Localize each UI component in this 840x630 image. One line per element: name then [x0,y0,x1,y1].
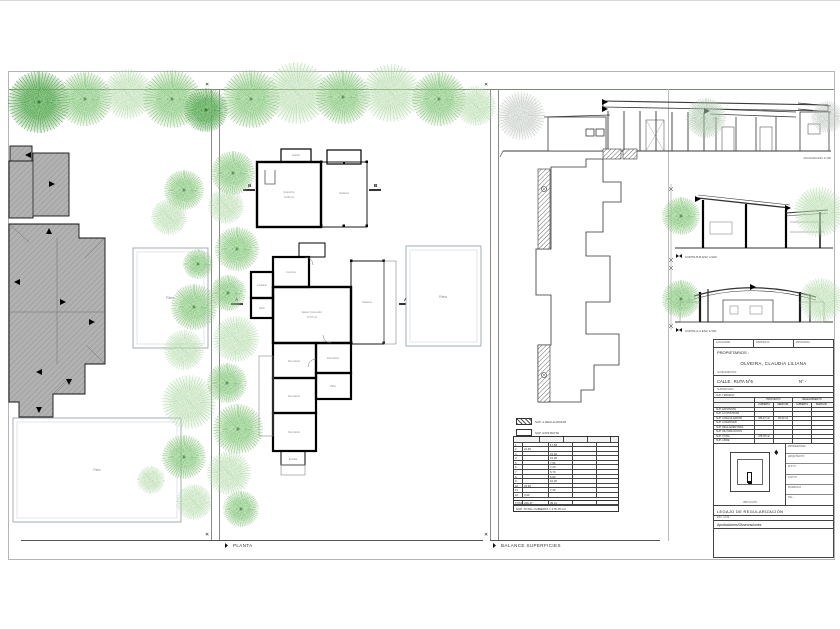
entrance-mark [748,481,752,484]
surfaces-cell [793,412,812,416]
title-block-top-cell: PARTIDA N° [754,340,794,347]
group-header-spacer [714,398,755,402]
table-cell [523,452,549,456]
room-label: Cocina [286,270,296,274]
table-cell [573,452,597,456]
room-label: Lavadero [257,284,268,287]
table-cell [549,447,573,451]
table-header-cell [588,437,609,442]
surfaces-cell [774,430,793,434]
table-cell [597,501,618,505]
room-label: Baño [330,385,336,388]
table-cell: 10,30 [549,479,573,483]
surfaces-cell [793,439,812,443]
surfaces-cell [812,435,831,439]
table-cell [573,470,597,474]
surfaces-cell [812,417,831,421]
surface-legend: SUP. A REGULARIZAR SUP. EXISTENTE [516,416,566,438]
table-cell: 4,90 [523,493,549,497]
table-cell: 5 [514,461,523,465]
professional-row: ARQUITECTO [786,454,833,464]
surfaces-row-label: SUP. LIBRE [714,439,755,443]
table-cell [549,484,573,488]
surfaces-cell [793,435,812,439]
corte-b-section: CORTE B-B ESC 1/100 [675,195,833,259]
corte-a-caption: CORTE A-A ESC 1/100 [685,329,717,333]
professional-row: TEL. : [786,495,833,504]
architectural-sheet: Pileta Patio [8,71,835,560]
table-cell: 15,90 [549,456,573,460]
table-cell [549,493,573,497]
room-label: Dormitorio [288,394,301,398]
surfaces-cell [755,412,774,416]
professional-row: PROFESIONAL : [786,444,833,454]
table-header-cell [540,437,564,442]
table-cell: 11 [514,488,523,492]
surfaces-cell [755,430,774,434]
table-cell [573,484,597,488]
table-cell [573,479,597,483]
regularization-plan [536,149,637,402]
street-number: N° - [799,379,833,384]
surfaces-cell [812,426,831,430]
room-label: Dormitorio [327,356,340,360]
table-cell [597,493,618,497]
room-area-label: 37,07 m2 [307,316,318,319]
pool-label: Pileta [439,295,447,299]
title-block-top-strip: LOCALIDADPARTIDA N°PROVINCIA [714,340,833,348]
table-cell: 8 [514,475,523,479]
planta-caption: PLANTA [225,543,253,548]
table-cell [597,470,618,474]
table-cell [597,484,618,488]
boundary-marker-icon: ✕ [205,83,209,88]
legend-item: SUP. A REGULARIZAR [516,416,566,427]
owner-name: OLVEIRA, CLAUDIA LILIANA [714,357,833,370]
boundary-marker-icon: ✕ [205,533,209,538]
table-cell: 4 [514,456,523,460]
table-cell [597,452,618,456]
boundary-marker-icon: ✕ [484,533,488,538]
section-dimension-line [669,184,673,330]
table-cell: 5,70 [549,470,573,474]
table-cell [523,488,549,492]
corte-a-section: CORTE A-A ESC 1/100 [675,284,833,333]
table-cell: 7,40 [549,488,573,492]
location-caption: UBICACIÓN [714,501,786,504]
title-block: LOCALIDADPARTIDA N°PROVINCIA PROPIETARIO… [713,339,834,558]
table-cell [523,456,549,460]
table-cell: 17,50 [549,443,573,447]
location-sketch: ♦ UBICACIÓN [714,444,786,505]
table-cell [573,443,597,447]
boundary-marker-icon: ✕ [484,83,488,88]
roof-plan-building [9,146,105,417]
room-label: Asador [292,153,300,157]
surfaces-row-label: SUP. TOTAL [714,435,755,439]
table-cell [597,488,618,492]
table-cell [523,470,549,474]
planta-caption-text: PLANTA [233,543,253,548]
surfaces-cell [774,408,793,412]
surfaces-row-label: SUP. DE INFRACCIÓN [714,430,755,434]
professional-row: M.P. N° [786,464,833,474]
room-label: Dormitorio [288,359,301,363]
table-cell: 10 [514,484,523,488]
empty-swatch-icon [516,429,532,436]
surfaces-table-body: SUP. EXISTENTE SUP. A CONSTRUIR [714,408,833,444]
table-cell: 6,80 [549,475,573,479]
table-cell [523,465,549,469]
table-cell [523,461,549,465]
table-row: 12 4,90 [514,493,618,498]
room-label: Galería [339,191,349,195]
main-house [251,243,396,475]
approvals-label: Aprobaciones/Observaciones [714,521,833,529]
table-cell: 24,60 [523,447,549,451]
surfaces-cell: 236,47 m2 [755,417,774,421]
table-body: 1 17,50 2 24,60 [514,443,618,498]
surfaces-cell [755,439,774,443]
surfaces-cell [774,439,793,443]
table-cell [573,456,597,460]
floor-plan-panel: Asador Quincho 24,60 m2 Galería Cocina L… [219,72,499,559]
table-cell [573,461,597,465]
professional-row: DOMICILIO : [786,485,833,495]
wall-ticks [320,161,385,345]
address-row: CALLE : RUTA N°6 N° - [714,376,833,387]
table-cell: TOTAL [514,501,523,505]
table-cell [573,475,597,479]
surfaces-cell [793,408,812,412]
surfaces-row-label: SUP. A DEMOLER [714,421,755,425]
table-cell [573,488,597,492]
room-labels: Asador Quincho 24,60 m2 Galería Cocina L… [257,153,372,461]
col-header-cell: SEMICUB. [774,403,793,407]
surfaces-row-label: SUP. REGLAMENTARIA [714,426,755,430]
group-header-cell: PROYECTO [755,398,793,402]
table-cell [597,479,618,483]
balance-caption: BALANCE SUPERFICIES [493,543,561,548]
plan-pool: Pileta [406,246,481,346]
legajo-label: LEGAJO DE REGULARIZACIÓN [714,506,833,516]
drawing-sheet-page: Pileta Patio [0,0,840,630]
table-cell: 3 [514,452,523,456]
table-cell: 21,40 [549,452,573,456]
surfaces-cell [774,421,793,425]
surfaces-cell [812,412,831,416]
surfaces-cell [812,408,831,412]
surfaces-cell [774,426,793,430]
title-block-top-cell: PROVINCIA [794,340,833,347]
section-marker-a: A [235,297,239,302]
surfaces-cell [793,426,812,430]
site-patio: Patio [13,418,181,522]
bowtie-marker-icon [225,543,231,548]
table-footer: SUP. TOTAL CUBIERTA = 275,78 m2 [514,505,618,511]
table-cell: 236,47 [523,501,549,505]
room-label: Estar Comedor [302,310,322,314]
owners-label: PROPIETARIOS : [714,348,833,357]
room-label: Quincho [283,190,295,194]
corte-b-caption: CORTE B-B ESC 1/100 [685,255,717,259]
table-cell [523,443,549,447]
surfaces-row-label: SUP. A CONSTRUIR [714,412,755,416]
table-cell: 2 [514,447,523,451]
table-cell [523,475,549,479]
surfaces-cell [774,412,793,416]
professional-row: CUIT N° [786,475,833,485]
table-cell [597,443,618,447]
professional-info: PROFESIONAL :ARQUITECTOM.P. N°CUIT N°DOM… [786,444,833,505]
roof-plan-panel: Pileta Patio [9,72,212,559]
patio-label: Patio [93,468,100,472]
table-cell [573,501,597,505]
table-cell: 7 [514,470,523,474]
table-header-cell [514,437,540,442]
north-arrow-icon: ♦ [774,448,779,457]
legend-label: SUP. EXISTENTE [535,431,559,435]
table-cell [573,465,597,469]
table-cell: 23,60 [523,484,549,488]
col-header-cell: SEMICUB. [812,403,831,407]
table-header-cell [564,437,588,442]
section-marker-b: B [374,183,378,188]
surface-balance-table: 1 17,50 2 24,60 [513,436,619,512]
balance-caption-text: BALANCE SUPERFICIES [501,543,561,548]
table-cell [597,461,618,465]
table-cell: 1 [514,443,523,447]
surfaces-cell [793,421,812,425]
table-cell [597,447,618,451]
surfaces-cell [793,417,812,421]
room-area-label: 24,60 m2 [284,196,295,199]
room-label: Entrada [289,458,298,461]
col-header-spacer [714,403,755,407]
table-cell: 12 [514,493,523,497]
site-pool: Pileta [133,248,208,348]
quincho-building [257,149,367,227]
surfaces-row-label: SUP. A REGULARIZAR [714,417,755,421]
facade-caption: FACHADA ESC 1/100 [804,156,832,160]
table-cell: 7,20 [549,465,573,469]
col-header-cell: CUBIERTA [793,403,812,407]
table-cell: 39,31 [549,501,573,505]
surfaces-cell: 275,78 m2 [755,435,774,439]
table-cell [573,447,597,451]
table-cell [573,493,597,497]
surfaces-cell [812,439,831,443]
pool-label: Pileta [166,296,174,300]
room-label: Dormitorio [288,430,301,434]
room-label: Galería [362,300,372,304]
col-header-cell: CUBIERTA [755,403,774,407]
facade-elevation [500,99,831,157]
table-cell [597,456,618,460]
section-marker-b: B [248,183,252,188]
table-cell: 7,60 [549,461,573,465]
street-label: CALLE : RUTA N°6 [714,379,799,384]
surfaces-cell: 39,31 m2 [774,417,793,421]
surfaces-row-label: SUP. EXISTENTE [714,408,755,412]
surfaces-cell [812,430,831,434]
surfaces-cell [774,435,793,439]
table-cell [597,465,618,469]
group-header-cell: RELEVAMIENTO [793,398,831,402]
surfaces-cell [755,426,774,430]
table-header-cell [609,437,611,442]
surfaces-cell [755,421,774,425]
title-block-top-cell: LOCALIDAD [714,340,754,347]
hatched-swatch-icon [516,418,532,425]
legend-label: SUP. A REGULARIZAR [535,420,566,424]
table-cell [597,475,618,479]
table-cell: 9 [514,479,523,483]
title-block-middle: ♦ UBICACIÓN PROFESIONAL :ARQUITECTOM.P. … [714,444,833,506]
table-cell: 6 [514,465,523,469]
table-cell [523,479,549,483]
room-label: Baño [259,307,265,310]
page-edge-top [0,0,840,1]
bowtie-marker-icon [493,543,499,548]
surfaces-cell [793,430,812,434]
surfaces-cell [812,421,831,425]
surfaces-cell [755,408,774,412]
